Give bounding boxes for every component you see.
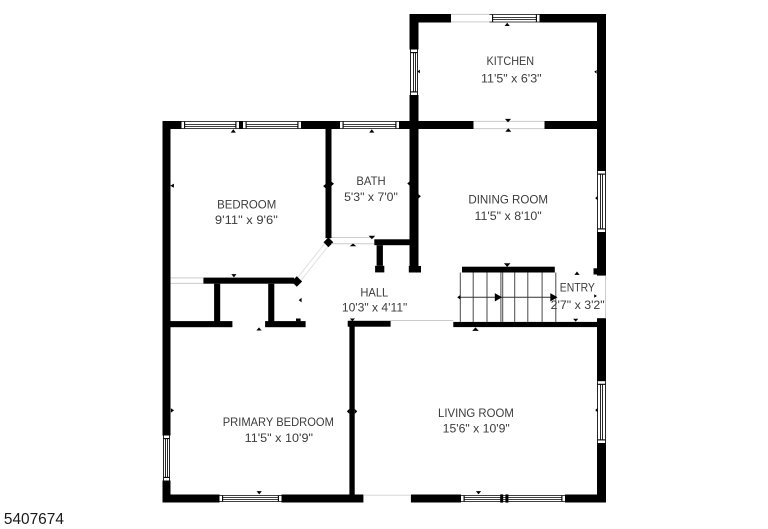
svg-text:11'5" x 6'3": 11'5" x 6'3" xyxy=(481,72,542,86)
svg-text:BEDROOM: BEDROOM xyxy=(217,198,276,212)
svg-text:11'5" x 10'9": 11'5" x 10'9" xyxy=(245,431,313,445)
svg-text:5407674: 5407674 xyxy=(4,511,64,528)
svg-text:LIVING ROOM: LIVING ROOM xyxy=(438,406,514,420)
svg-text:DINING ROOM: DINING ROOM xyxy=(468,192,548,206)
svg-text:9'11" x 9'6": 9'11" x 9'6" xyxy=(215,213,278,227)
svg-text:PRIMARY BEDROOM: PRIMARY BEDROOM xyxy=(223,415,334,429)
svg-text:BATH: BATH xyxy=(356,174,385,188)
svg-text:ENTRY: ENTRY xyxy=(560,280,595,294)
svg-text:15'6" x 10'9": 15'6" x 10'9" xyxy=(443,421,510,435)
svg-text:11'5" x 8'10": 11'5" x 8'10" xyxy=(475,209,542,223)
svg-text:10'3" x 4'11": 10'3" x 4'11" xyxy=(342,301,408,315)
svg-text:2'7" x 3'2": 2'7" x 3'2" xyxy=(551,298,605,312)
svg-text:5'3" x 7'0": 5'3" x 7'0" xyxy=(344,190,398,204)
svg-text:KITCHEN: KITCHEN xyxy=(487,54,535,68)
svg-text:HALL: HALL xyxy=(360,286,388,300)
